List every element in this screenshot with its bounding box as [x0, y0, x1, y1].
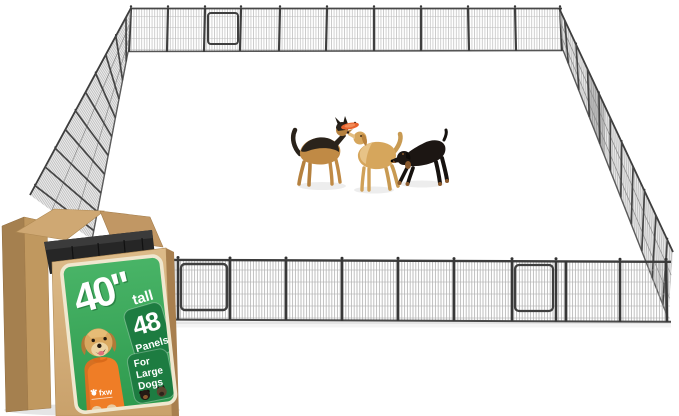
back-bottom-rail: [128, 51, 563, 52]
right-wall-gate: [588, 69, 606, 157]
product-image: 40" 40" tall 48 Panels: [0, 0, 679, 416]
brand-name: fxw: [98, 387, 113, 397]
product-box: 40" 40" tall 48 Panels: [2, 209, 180, 416]
scene: 40" 40" tall 48 Panels: [0, 0, 679, 416]
playpen-left-wall: [30, 8, 131, 240]
box-outer-layer: [2, 217, 28, 412]
dogs-playing: [293, 116, 449, 194]
box-label: 40" 40" tall 48 Panels: [61, 254, 180, 416]
playpen-back-wall: [128, 5, 563, 52]
playpen-front-wall: [140, 256, 671, 328]
back-wall-finials: [130, 5, 561, 7]
